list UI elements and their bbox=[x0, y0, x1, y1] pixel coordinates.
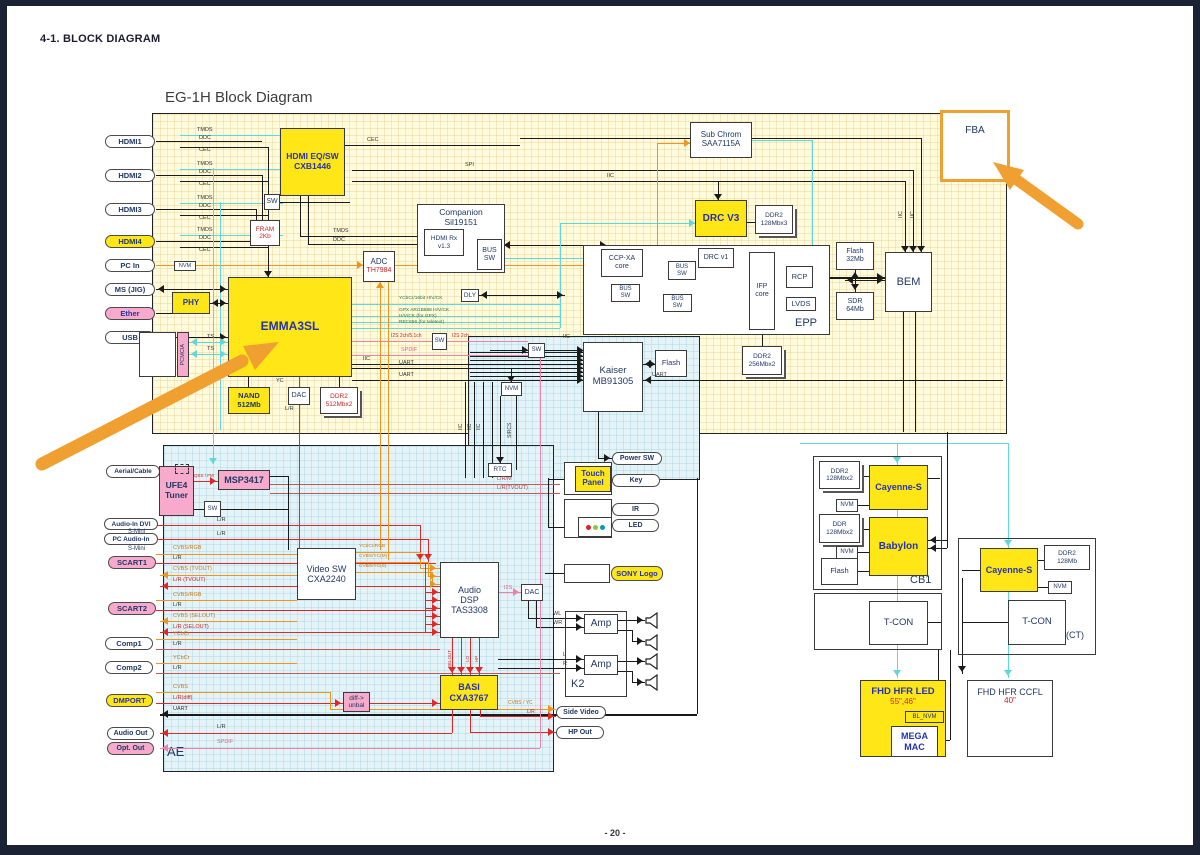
sig-spi: SPI bbox=[465, 163, 474, 169]
sig-lrm: L/R/M bbox=[497, 477, 512, 483]
sig-lr: L/R bbox=[173, 666, 182, 672]
sig-spdif: SPDIF bbox=[217, 740, 233, 746]
sig-cvbs: CVBS bbox=[173, 685, 188, 691]
sig-wl: WL bbox=[553, 612, 561, 618]
sig-ts: TS bbox=[207, 335, 214, 341]
sig-cvbs-tvout: CVBS (TVOUT) bbox=[173, 567, 212, 573]
sig-cvbs-ycs: CVBS/YC(S) bbox=[359, 565, 386, 570]
sig-qss-fm: QSS / FM bbox=[194, 474, 214, 479]
sig-cec: CEC bbox=[199, 182, 211, 188]
sig-r: R bbox=[563, 662, 567, 668]
sig-ts: TS bbox=[207, 347, 214, 353]
sig-lr-tvout: L/R(TVOUT) bbox=[497, 486, 528, 492]
callout-arrows bbox=[7, 6, 1200, 855]
sig-spdif: SPDIF bbox=[401, 348, 417, 354]
sig-wr: WR bbox=[553, 621, 562, 627]
sig-tmds: TMDS bbox=[197, 196, 213, 202]
sig-iic-v: IIC bbox=[477, 424, 482, 430]
sig-iic-v: IIC bbox=[459, 424, 464, 430]
sig-cec: CEC bbox=[199, 216, 211, 222]
sig-iic: IIC bbox=[563, 335, 570, 341]
sig-lr-selout: L/R (SELOUT) bbox=[173, 625, 209, 631]
sig-tmds: TMDS bbox=[197, 128, 213, 134]
sig-lr: L/R bbox=[217, 532, 226, 538]
sig-cvbs-rgb: CVBS/RGB bbox=[173, 546, 201, 552]
sig-ycbcr16: YCbCr/16bit H/V/CK bbox=[399, 297, 442, 302]
sig-selout-v: SELOUT bbox=[448, 650, 453, 668]
sig-ycbcr: YCbCr bbox=[173, 632, 190, 638]
sig-lr: L/R bbox=[217, 518, 226, 524]
sig-iic-v: IIC bbox=[899, 211, 905, 218]
sig-lr: L/R bbox=[217, 725, 226, 731]
sig-yc: YC bbox=[276, 379, 284, 385]
sig-ycbcr-rgb: YCbCr/RGB bbox=[359, 545, 385, 550]
page-number: - 20 - bbox=[585, 828, 645, 838]
sig-ddc: DDC bbox=[199, 204, 211, 210]
sig-i2s: I2S bbox=[504, 586, 512, 592]
sig-cvbs-selout: CVBS (SELOUT) bbox=[173, 614, 215, 620]
sig-ddc: DDC bbox=[199, 236, 211, 242]
sig-ddc: DDC bbox=[333, 238, 345, 244]
emma-callout-arrow bbox=[42, 342, 279, 464]
sig-iic: IIC bbox=[363, 357, 370, 363]
sig-l: L bbox=[563, 653, 566, 659]
fba-callout-arrow bbox=[993, 162, 1078, 224]
sig-sircs-v: SIRCS bbox=[508, 423, 513, 438]
sig-tmds: TMDS bbox=[197, 228, 213, 234]
sig-uart: UART bbox=[173, 707, 188, 713]
sig-rec656: REC656 (for teletext) bbox=[399, 321, 444, 326]
sig-lr: L/R bbox=[285, 407, 294, 413]
sig-iic-v: IIC bbox=[468, 424, 473, 430]
sig-cec: CEC bbox=[199, 248, 211, 254]
sig-lr: L/R bbox=[173, 603, 182, 609]
manual-page: 4-1. BLOCK DIAGRAM EG-1H Block Diagram A… bbox=[0, 0, 1200, 855]
sig-lr: L/R bbox=[173, 642, 182, 648]
sig-cec: CEC bbox=[367, 138, 379, 144]
sig-iic: IIC bbox=[607, 174, 614, 180]
sig-cvbs-rgb: CVBS/RGB bbox=[173, 593, 201, 599]
sig-ddc: DDC bbox=[199, 170, 211, 176]
sig-iic-v: IIC bbox=[911, 211, 917, 218]
sig-cec: CEC bbox=[199, 148, 211, 154]
sig-ycbcr: YCbCr bbox=[173, 656, 190, 662]
sig-uart: UART bbox=[652, 373, 667, 379]
sig-cvbs-ycm: CVBS/YC(M) bbox=[359, 555, 387, 560]
sig-lr: L/R bbox=[173, 556, 182, 562]
sig-lr-tvout2: L/R (TVOUT) bbox=[173, 578, 205, 584]
sig-hp-v: HP bbox=[475, 656, 480, 662]
sig-lr-diff: L/R(diff) bbox=[173, 696, 192, 702]
sig-lo-v: LO bbox=[466, 656, 471, 662]
sig-tmds: TMDS bbox=[333, 229, 349, 235]
sig-lr: L/R bbox=[527, 710, 535, 715]
sig-uart: UART bbox=[399, 361, 414, 367]
sig-cvbs-yc: CVBS / YC bbox=[508, 701, 533, 706]
sig-tmds: TMDS bbox=[197, 162, 213, 168]
sig-i2s-2ch51: I2S 2ch/5.1ch bbox=[391, 334, 422, 339]
sig-uart: UART bbox=[399, 373, 414, 379]
sig-ddc: DDC bbox=[199, 136, 211, 142]
sig-i2s-2ch: I2S 2ch bbox=[452, 334, 469, 339]
